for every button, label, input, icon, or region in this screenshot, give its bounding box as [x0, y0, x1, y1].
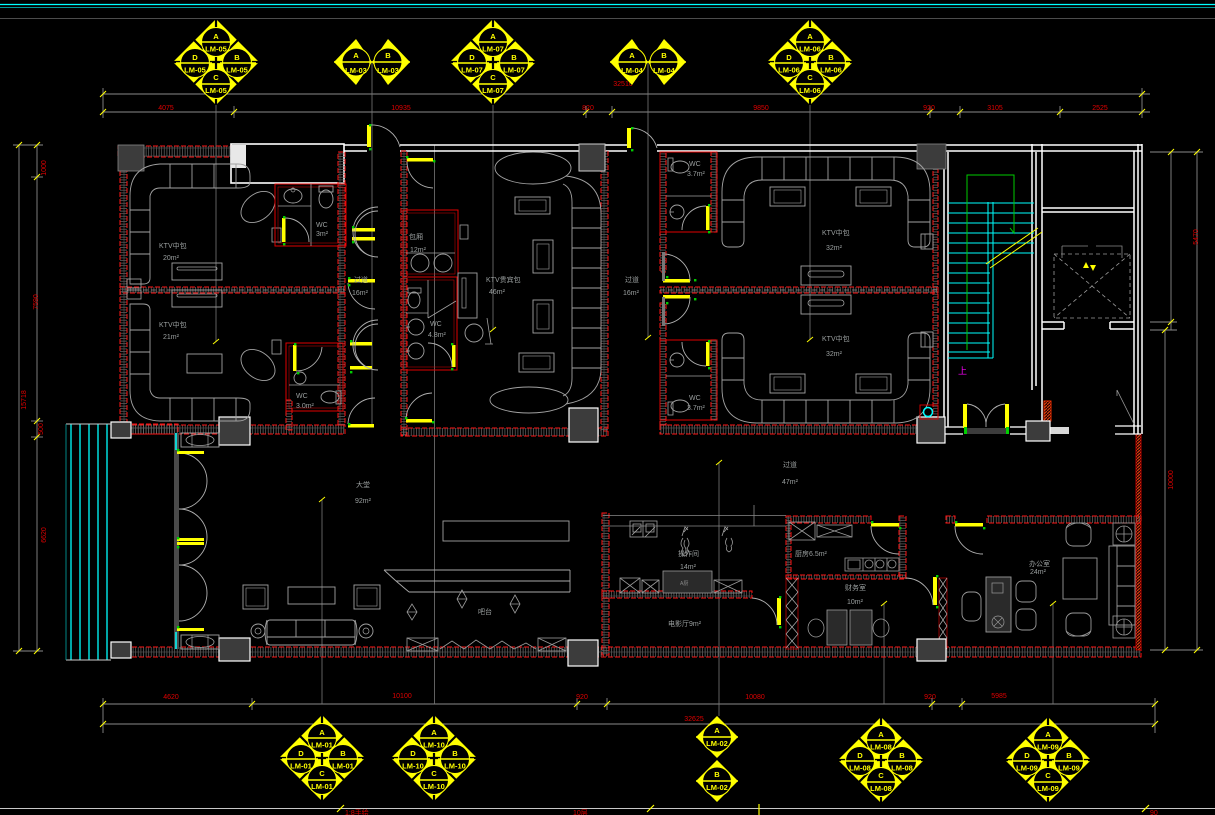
svg-text:A: A: [629, 51, 635, 60]
svg-text:D: D: [469, 53, 475, 62]
svg-text:LM-06: LM-06: [799, 86, 821, 95]
svg-text:WC: WC: [296, 393, 308, 400]
svg-text:D: D: [298, 749, 304, 758]
svg-text:LM-05: LM-05: [226, 66, 248, 75]
svg-text:10层: 10层: [573, 809, 588, 815]
svg-text:C: C: [490, 73, 496, 82]
svg-text:LM-07: LM-07: [461, 66, 483, 75]
svg-text:LM-07: LM-07: [503, 66, 525, 75]
svg-text:3.0m²: 3.0m²: [296, 403, 315, 410]
svg-text:LM-10: LM-10: [423, 741, 445, 750]
svg-text:LM-05: LM-05: [205, 86, 227, 95]
svg-text:3.7m²: 3.7m²: [687, 171, 706, 178]
svg-text:5985: 5985: [991, 693, 1007, 700]
svg-text:5470: 5470: [1193, 229, 1200, 245]
svg-text:A: A: [490, 32, 496, 41]
svg-text:920: 920: [923, 105, 935, 112]
svg-text:B: B: [899, 751, 905, 760]
svg-text:大堂: 大堂: [356, 480, 370, 489]
svg-text:15718: 15718: [21, 390, 28, 410]
svg-text:办公室: 办公室: [1029, 559, 1050, 568]
svg-text:LM-01: LM-01: [290, 762, 312, 771]
svg-text:46m²: 46m²: [489, 289, 506, 296]
svg-text:LM-09: LM-09: [1037, 743, 1059, 752]
svg-text:KTV贵宾包: KTV贵宾包: [486, 275, 521, 284]
svg-text:20m²: 20m²: [163, 255, 180, 262]
svg-text:B: B: [661, 51, 667, 60]
svg-text:厨房6.5m²: 厨房6.5m²: [795, 549, 828, 558]
svg-text:12m²: 12m²: [410, 247, 427, 254]
svg-text:LM-07: LM-07: [482, 86, 504, 95]
svg-text:D: D: [857, 751, 863, 760]
svg-text:16m²: 16m²: [352, 290, 369, 297]
svg-text:LM-05: LM-05: [205, 45, 227, 54]
svg-text:吧台: 吧台: [478, 607, 492, 616]
svg-text:A: A: [319, 728, 325, 737]
svg-text:2525: 2525: [1092, 105, 1108, 112]
svg-text:上: 上: [958, 366, 967, 376]
svg-text:92m²: 92m²: [355, 498, 372, 505]
svg-text:9850: 9850: [753, 105, 769, 112]
svg-text:LM-08: LM-08: [849, 764, 871, 773]
svg-text:B: B: [452, 749, 458, 758]
svg-text:D: D: [1024, 751, 1030, 760]
svg-text:LM-09: LM-09: [1058, 764, 1080, 773]
svg-text:920: 920: [576, 694, 588, 701]
svg-text:10m²: 10m²: [847, 599, 864, 606]
svg-text:LM-04: LM-04: [653, 66, 675, 75]
svg-text:LM-10: LM-10: [444, 762, 466, 771]
svg-text:1:8手绘: 1:8手绘: [345, 808, 369, 815]
svg-text:KTV中包: KTV中包: [822, 228, 850, 237]
svg-text:B: B: [234, 53, 240, 62]
svg-text:LM-01: LM-01: [311, 741, 333, 750]
svg-text:24m²: 24m²: [1030, 569, 1047, 576]
svg-text:LM-02: LM-02: [706, 739, 728, 748]
svg-text:90: 90: [1150, 810, 1158, 815]
svg-text:500: 500: [38, 423, 45, 435]
svg-text:操作间: 操作间: [678, 549, 699, 558]
svg-text:A: A: [213, 32, 219, 41]
svg-text:A: A: [353, 51, 359, 60]
svg-text:D: D: [192, 53, 198, 62]
svg-text:3.7m²: 3.7m²: [687, 405, 706, 412]
svg-text:4075: 4075: [158, 105, 174, 112]
svg-text:820: 820: [582, 105, 594, 112]
svg-text:LM-08: LM-08: [891, 764, 913, 773]
svg-text:C: C: [213, 73, 219, 82]
svg-text:LM-09: LM-09: [1016, 764, 1038, 773]
svg-text:B: B: [714, 770, 720, 779]
svg-text:D: D: [410, 749, 416, 758]
svg-text:4.8m²: 4.8m²: [428, 332, 447, 339]
svg-text:LM-07: LM-07: [482, 45, 504, 54]
svg-text:21m²: 21m²: [163, 334, 180, 341]
svg-text:LM-03: LM-03: [377, 66, 399, 75]
svg-text:32625: 32625: [684, 716, 704, 723]
svg-text:6620: 6620: [41, 527, 48, 543]
svg-text:A厨: A厨: [680, 581, 688, 587]
svg-text:过道: 过道: [354, 275, 368, 284]
svg-text:A: A: [1045, 730, 1051, 739]
svg-text:LM-08: LM-08: [870, 784, 892, 793]
svg-text:920: 920: [924, 694, 936, 701]
svg-text:过道: 过道: [783, 460, 797, 469]
svg-text:KTV中包: KTV中包: [159, 241, 187, 250]
svg-text:LM-02: LM-02: [706, 783, 728, 792]
svg-text:32m²: 32m²: [826, 351, 843, 358]
svg-text:LM-01: LM-01: [311, 782, 333, 791]
svg-text:14m²: 14m²: [680, 564, 697, 571]
svg-text:C: C: [1045, 771, 1051, 780]
svg-text:10935: 10935: [391, 105, 411, 112]
svg-text:A: A: [431, 728, 437, 737]
svg-text:WC: WC: [430, 321, 442, 328]
svg-text:C: C: [807, 73, 813, 82]
svg-text:A: A: [878, 730, 884, 739]
svg-text:B: B: [1066, 751, 1072, 760]
svg-text:16m²: 16m²: [623, 290, 640, 297]
svg-text:C: C: [878, 771, 884, 780]
svg-text:10080: 10080: [745, 694, 765, 701]
svg-text:7590: 7590: [33, 294, 40, 310]
svg-text:WC: WC: [316, 222, 328, 229]
svg-text:KTV中包: KTV中包: [159, 320, 187, 329]
svg-text:32m²: 32m²: [826, 245, 843, 252]
svg-text:LM-08: LM-08: [870, 743, 892, 752]
svg-text:电影厅9m²: 电影厅9m²: [668, 619, 702, 628]
svg-text:10000: 10000: [1168, 470, 1175, 490]
svg-text:D: D: [786, 53, 792, 62]
svg-text:3105: 3105: [987, 105, 1003, 112]
svg-text:A: A: [714, 726, 720, 735]
svg-text:C: C: [431, 769, 437, 778]
svg-text:KTV中包: KTV中包: [822, 334, 850, 343]
svg-text:B: B: [511, 53, 517, 62]
svg-text:LM-06: LM-06: [820, 66, 842, 75]
svg-text:包厢: 包厢: [409, 232, 423, 241]
svg-text:LM-10: LM-10: [402, 762, 424, 771]
svg-text:LM-04: LM-04: [621, 66, 643, 75]
svg-text:LM-06: LM-06: [799, 45, 821, 54]
svg-text:1000: 1000: [41, 160, 48, 176]
svg-text:LM-05: LM-05: [184, 66, 206, 75]
svg-text:过道: 过道: [625, 275, 639, 284]
svg-text:LM-06: LM-06: [778, 66, 800, 75]
svg-text:LM-10: LM-10: [423, 782, 445, 791]
svg-text:3m²: 3m²: [316, 231, 329, 238]
svg-text:LM-01: LM-01: [332, 762, 354, 771]
svg-text:LM-03: LM-03: [345, 66, 367, 75]
svg-text:47m²: 47m²: [782, 479, 799, 486]
svg-text:B: B: [385, 51, 391, 60]
svg-text:C: C: [319, 769, 325, 778]
svg-text:B: B: [340, 749, 346, 758]
svg-text:A: A: [807, 32, 813, 41]
svg-text:财务室: 财务室: [845, 583, 866, 592]
svg-text:4620: 4620: [163, 694, 179, 701]
svg-text:10100: 10100: [392, 693, 412, 700]
svg-text:LM-09: LM-09: [1037, 784, 1059, 793]
svg-text:WC: WC: [689, 161, 701, 168]
svg-text:B: B: [828, 53, 834, 62]
svg-text:WC: WC: [689, 395, 701, 402]
